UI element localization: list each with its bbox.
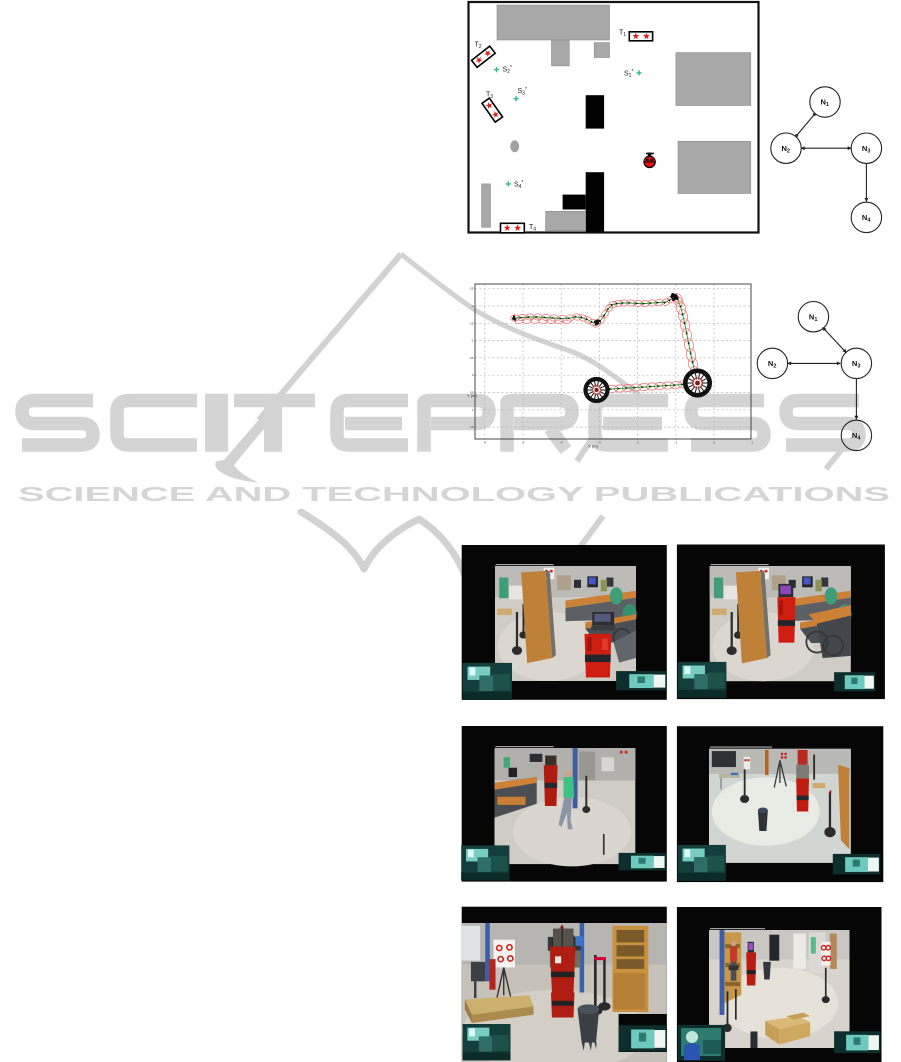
svg-text:-15: -15 xyxy=(469,321,474,325)
svg-text:SCIENCE AND TECHNOLOGY PUBLICA: SCIENCE AND TECHNOLOGY PUBLICATIONS xyxy=(18,484,890,506)
svg-text:N1: N1 xyxy=(809,312,817,323)
svg-text:-1: -1 xyxy=(674,441,677,445)
svg-text:N2: N2 xyxy=(768,359,776,370)
svg-text:-2: -2 xyxy=(471,304,474,308)
svg-text:-05: -05 xyxy=(469,356,474,360)
svg-text:15: 15 xyxy=(470,425,474,429)
svg-text:-6: -6 xyxy=(483,441,486,445)
svg-text:-2: -2 xyxy=(636,441,639,445)
svg-text:-3: -3 xyxy=(598,441,601,445)
svg-text:-25: -25 xyxy=(469,287,474,291)
svg-text:1: 1 xyxy=(472,408,474,412)
svg-text:N3: N3 xyxy=(852,359,860,370)
svg-text:-1: -1 xyxy=(471,339,474,343)
svg-text:Y (m): Y (m) xyxy=(467,393,477,398)
svg-text:-5: -5 xyxy=(522,441,525,445)
svg-text:0: 0 xyxy=(472,373,474,377)
svg-text:-4: -4 xyxy=(560,441,563,445)
svg-text:X (m): X (m) xyxy=(588,444,598,449)
